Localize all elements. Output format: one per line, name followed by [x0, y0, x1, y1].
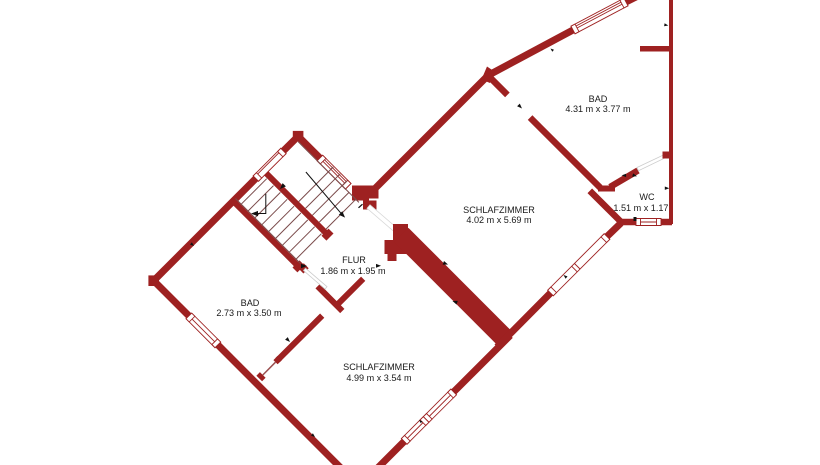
- svg-text:4.31 m x 3.77 m: 4.31 m x 3.77 m: [565, 104, 630, 114]
- svg-text:FLUR: FLUR: [342, 255, 366, 265]
- svg-text:SCHLAFZIMMER: SCHLAFZIMMER: [463, 205, 535, 215]
- svg-text:2.73 m x 3.50 m: 2.73 m x 3.50 m: [216, 308, 281, 318]
- svg-text:4.02 m x 5.69 m: 4.02 m x 5.69 m: [466, 215, 531, 225]
- svg-text:1.86 m x 1.95 m: 1.86 m x 1.95 m: [320, 266, 385, 276]
- svg-text:WC: WC: [639, 192, 655, 202]
- svg-text:BAD: BAD: [241, 298, 260, 308]
- svg-text:4.99 m x 3.54 m: 4.99 m x 3.54 m: [346, 373, 411, 383]
- svg-text:SCHLAFZIMMER: SCHLAFZIMMER: [343, 362, 415, 372]
- svg-text:BAD: BAD: [589, 94, 608, 104]
